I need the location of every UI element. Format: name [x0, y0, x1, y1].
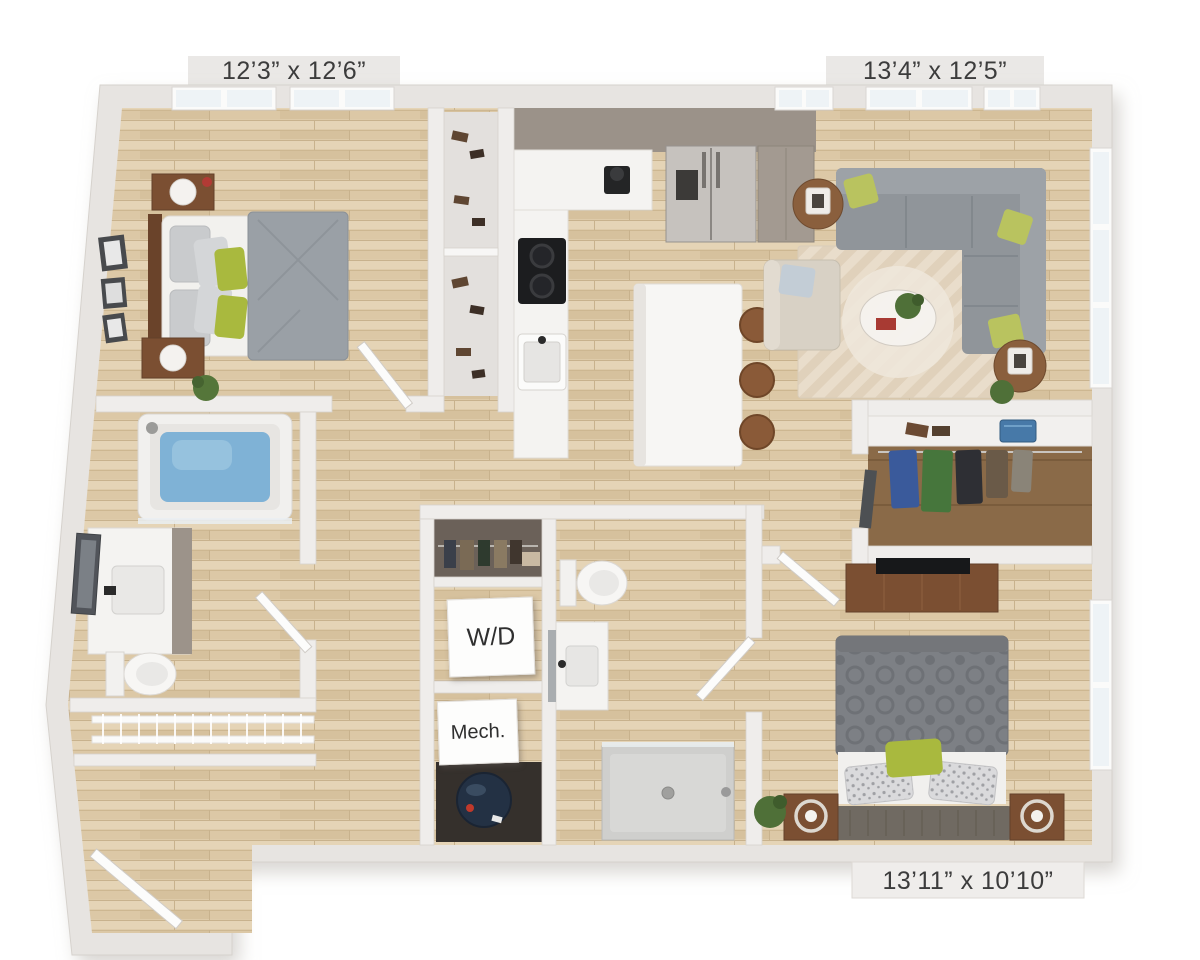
wall-bath2-bed2-lower: [746, 712, 762, 845]
living-room-dimensions-label: 13’4” x 12’5”: [826, 56, 1044, 87]
toilet-tank: [560, 560, 576, 606]
burner: [531, 245, 553, 267]
bar-stool: [740, 415, 774, 449]
bedroom1-dimensions-label: 12’3” x 12’6”: [188, 56, 400, 87]
lamp-center: [1014, 354, 1026, 368]
toilet-seat: [589, 570, 619, 596]
heater-highlight: [466, 784, 486, 796]
sofa-back-cushion: [1020, 168, 1046, 354]
wall-walkin-north: [852, 400, 1092, 416]
faucet: [104, 586, 116, 595]
bedroom2-dimensions-label: 13’11” x 10’10”: [852, 864, 1084, 898]
glass-screen: [138, 518, 292, 524]
table-lamp: [160, 345, 186, 371]
living-room-windows-top: [775, 87, 1040, 110]
ring-lamp-center: [1031, 810, 1043, 822]
island-edge: [634, 284, 646, 466]
shower-head: [146, 422, 158, 434]
blue-pillow: [778, 264, 816, 298]
ring-lamp-center: [805, 810, 817, 822]
closet1-shelf: [444, 248, 498, 256]
lamp-center: [812, 194, 824, 208]
toilet-seat: [136, 662, 168, 686]
shower-glass: [602, 742, 734, 747]
wall-bathroom1-south: [70, 698, 316, 712]
kitchen-island: [634, 284, 742, 466]
hanging-clothes: [955, 450, 983, 505]
wall-walkin-west-lower: [852, 528, 868, 564]
fridge-handle: [716, 152, 720, 188]
floor-plan-drawing: [0, 0, 1200, 960]
hanging-clothes: [478, 540, 490, 566]
sink-basin: [524, 342, 560, 382]
mirror: [548, 630, 556, 702]
hanging-clothes: [494, 540, 507, 568]
plant-leaf: [192, 376, 204, 388]
storage-basket: [1000, 420, 1036, 442]
bedroom2-window-right: [1090, 600, 1112, 770]
headboard: [148, 214, 162, 358]
heater-valve: [466, 804, 474, 812]
mechanical-room-label: Mech.: [437, 699, 519, 766]
hanging-clothes: [444, 540, 456, 568]
wall-utility-west: [420, 519, 434, 845]
burner: [531, 275, 553, 297]
hanging-clothes: [460, 540, 474, 570]
plant-leaf: [912, 294, 924, 306]
hanging-clothes: [1011, 450, 1033, 493]
wall-bedroom1-closet: [428, 108, 444, 412]
wall-bath2-bed2-upper: [746, 505, 762, 638]
gray-duvet: [248, 212, 348, 360]
shoes: [932, 426, 950, 436]
wall-wd-mech-divider: [434, 681, 556, 693]
hanging-clothes: [986, 450, 1008, 498]
table-lamp: [170, 179, 196, 205]
flower-vase: [202, 177, 212, 187]
coffee-maker-top: [610, 167, 624, 181]
fridge-handle: [702, 152, 706, 188]
closet-shelf: [868, 416, 1092, 446]
kitchen-back-wall: [500, 108, 816, 152]
living-room: [764, 168, 1046, 404]
sink-basin: [566, 646, 598, 686]
shower-drain: [662, 787, 674, 799]
wall-bedroom1-south-left: [96, 396, 332, 412]
hanging-clothes: [921, 449, 953, 512]
vanity-cabinet: [172, 528, 192, 654]
counter-top-arm: [514, 150, 652, 210]
faucet: [558, 660, 566, 668]
chair-back: [764, 260, 780, 350]
storage-box: [522, 552, 540, 566]
green-accent-pillow: [214, 247, 248, 292]
water-heater: [457, 773, 511, 827]
sink-basin: [112, 566, 164, 614]
wall-walkin-west-upper: [852, 400, 868, 454]
wall-linen-south: [74, 754, 316, 766]
green-accent-pillow: [885, 738, 943, 778]
green-accent-pillow: [214, 295, 248, 340]
book: [876, 318, 896, 330]
plant: [990, 380, 1014, 404]
washer-dryer-label: W/D: [447, 597, 536, 678]
hanging-clothes: [889, 449, 920, 508]
wall-coat-wd-divider: [434, 577, 556, 587]
ice-dispenser: [676, 170, 698, 200]
living-room-window-right: [1090, 148, 1112, 388]
duvet-fold: [836, 636, 1008, 652]
faucet: [538, 336, 546, 344]
wall-bathroom1-east-upper: [300, 412, 316, 564]
toilet-tank: [106, 652, 124, 696]
plant-leaf: [773, 795, 787, 809]
wall-closet-kitchen: [498, 108, 514, 412]
hanging-clothes: [510, 540, 522, 564]
patterned-duvet: [836, 636, 1008, 756]
wall-hall-south: [420, 505, 764, 519]
tv: [876, 558, 970, 574]
wall-bedroom2-north-stub: [762, 546, 780, 564]
floor-plan-image: 12’3” x 12’6” 13’4” x 12’5” 13’11” x 10’…: [0, 0, 1200, 960]
bar-stool: [740, 363, 774, 397]
water-highlight: [172, 440, 232, 470]
shower-head: [721, 787, 731, 797]
